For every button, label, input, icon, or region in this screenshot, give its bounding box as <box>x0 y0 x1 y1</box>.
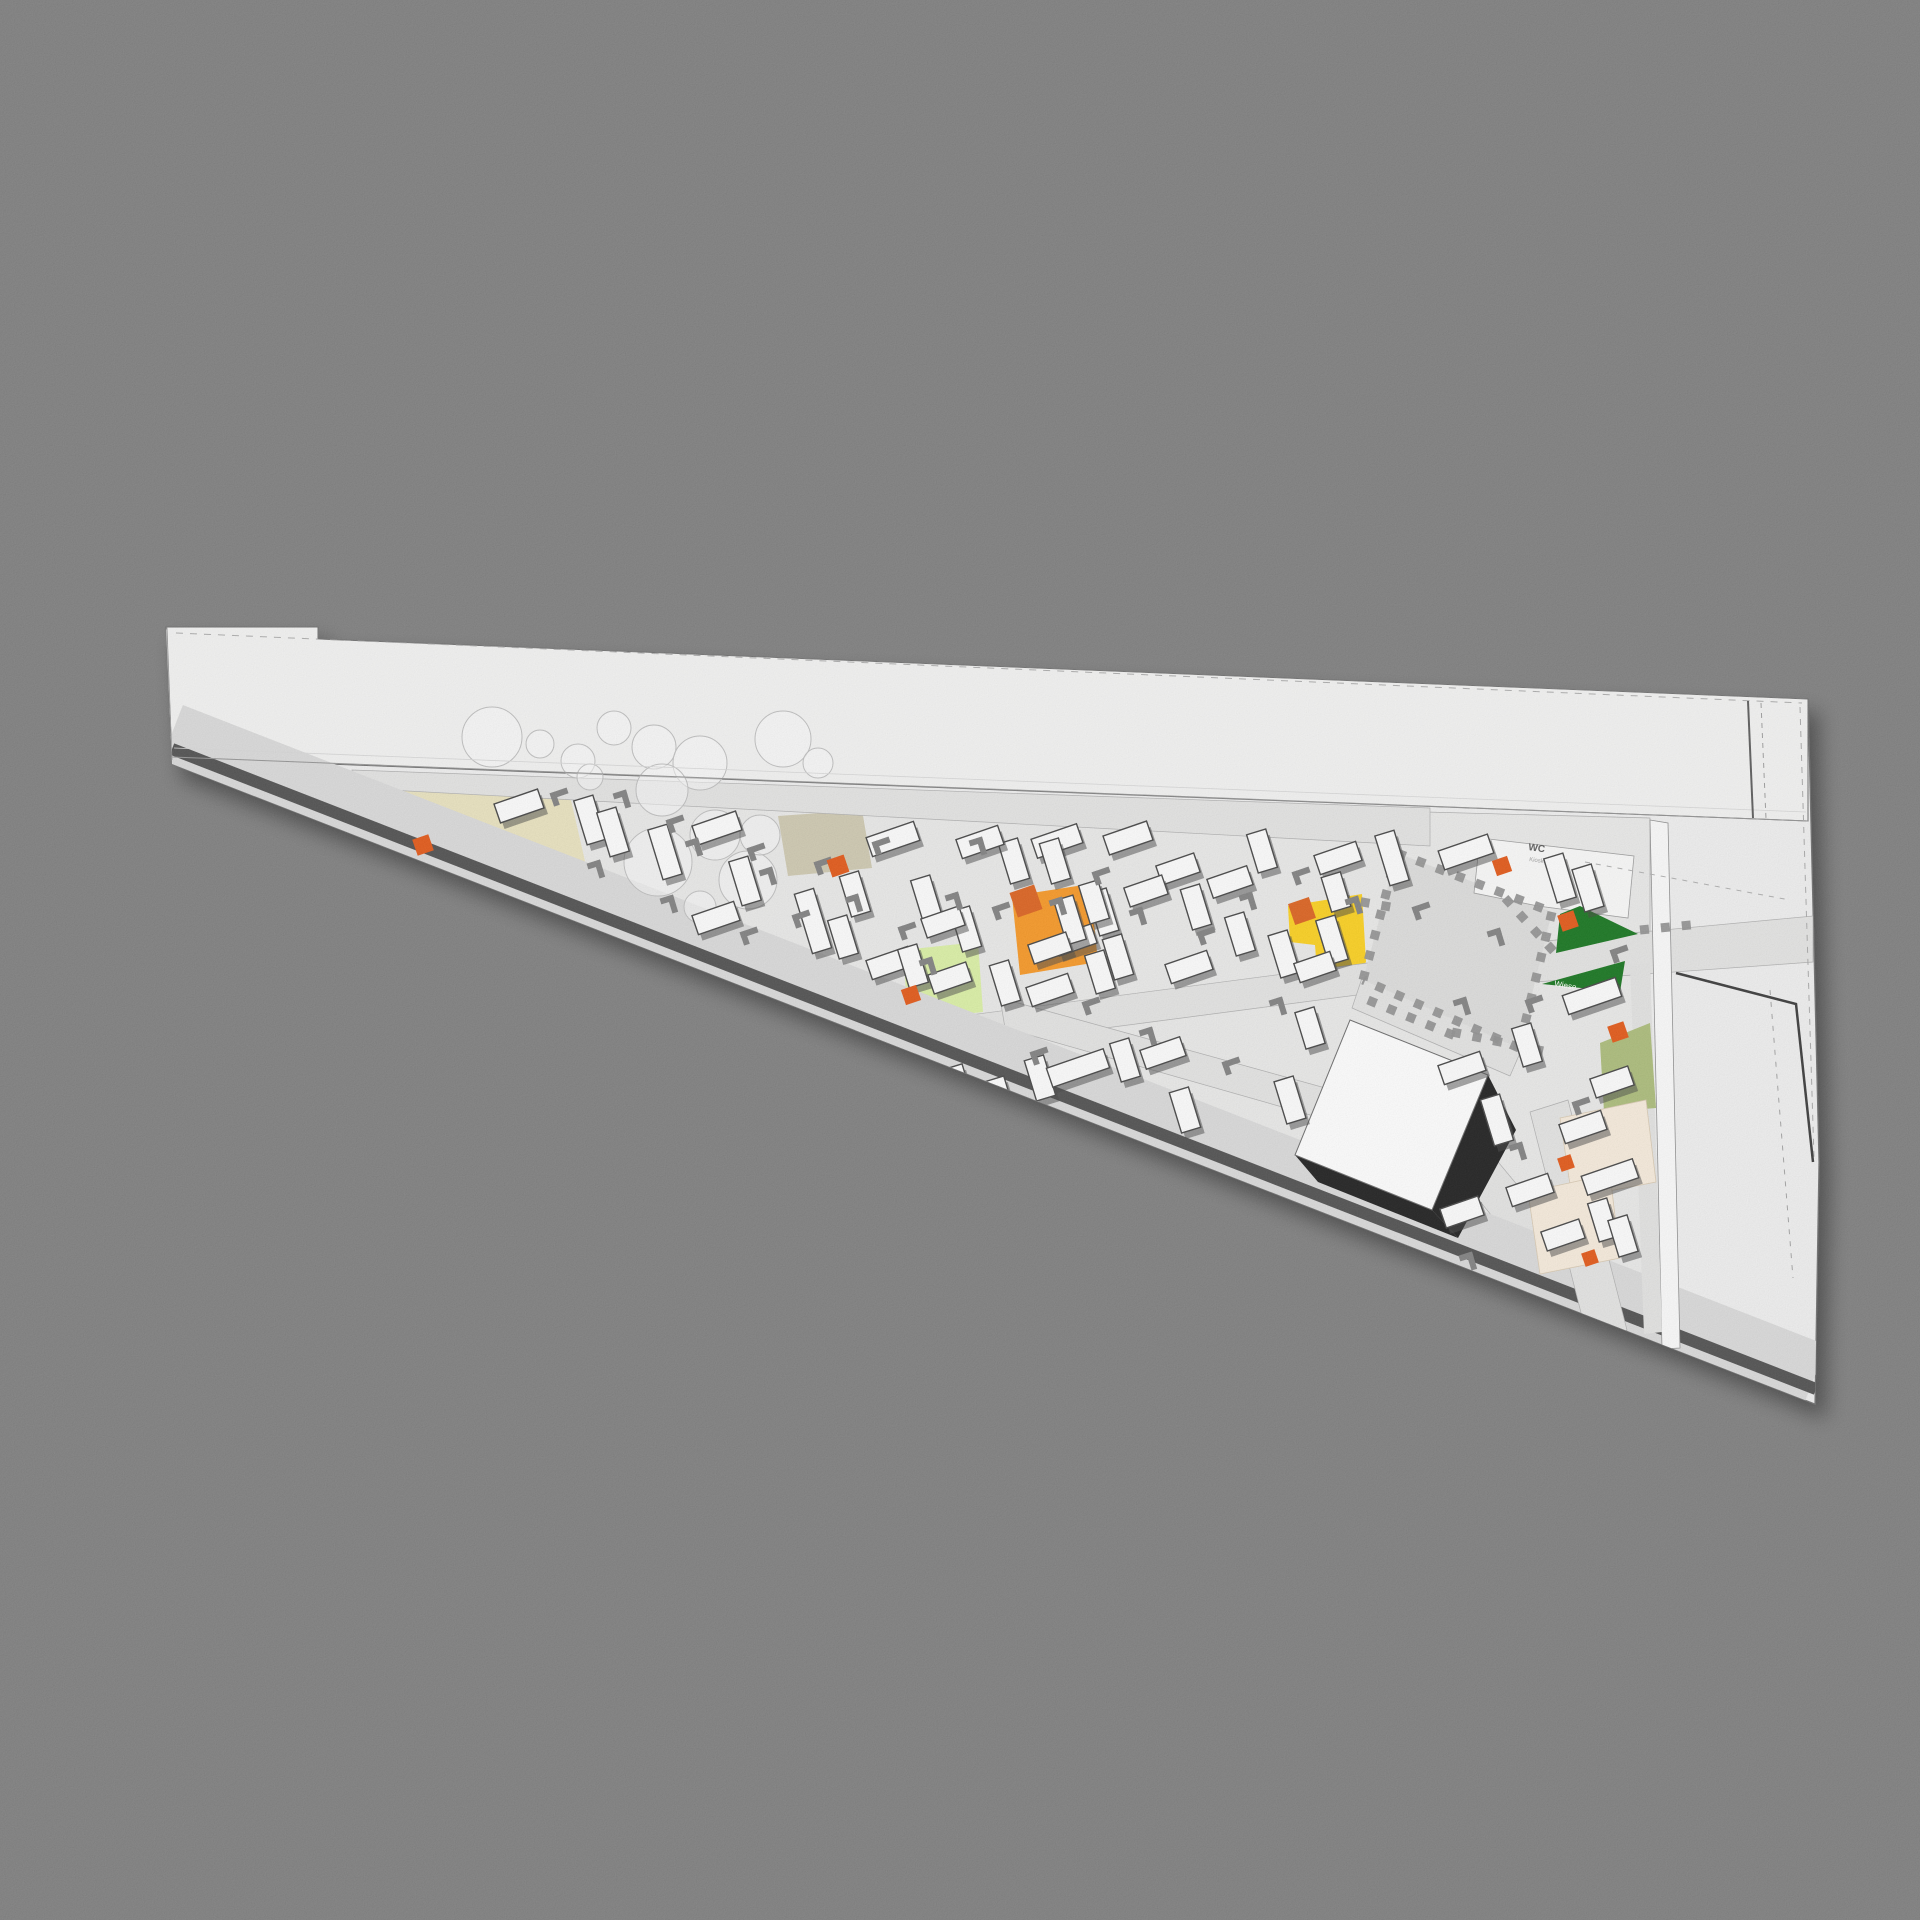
site-plan: WC Kiosk Wiese <box>0 0 1920 1920</box>
page: WC Kiosk Wiese <box>0 0 1920 1920</box>
grain-texture <box>0 0 1920 1920</box>
